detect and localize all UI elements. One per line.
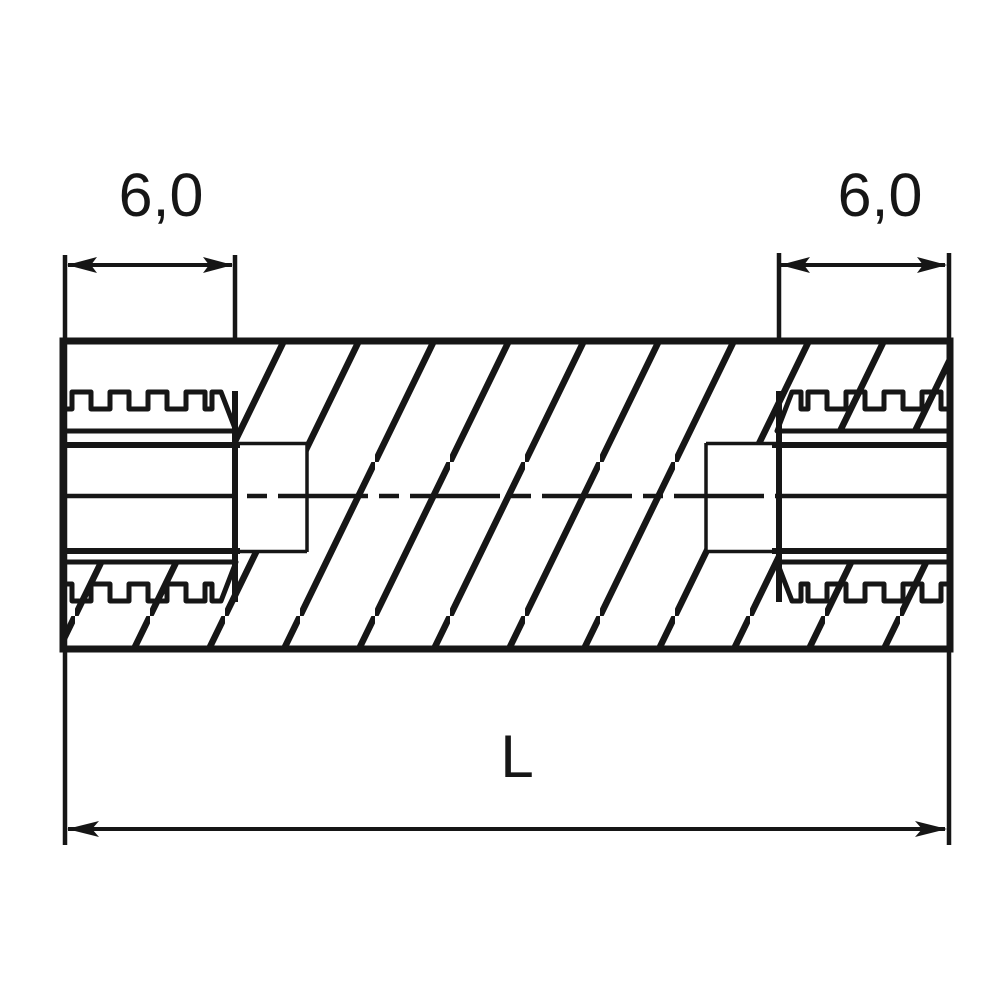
- drawing-canvas: 6,0 6,0 L: [0, 0, 1000, 1000]
- dim-label-left-thread-depth: 6,0: [119, 161, 204, 229]
- technical-drawing: 6,0 6,0 L: [0, 0, 1000, 1000]
- dim-label-overall-length: L: [500, 723, 533, 790]
- dim-label-right-thread-depth: 6,0: [838, 161, 923, 229]
